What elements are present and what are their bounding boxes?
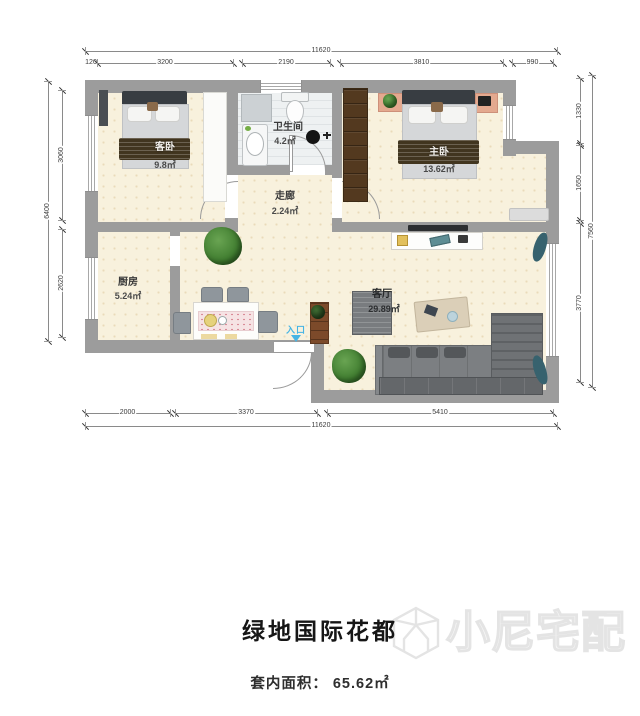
dimension-part — [576, 78, 584, 79]
dimension-label: 6400 — [44, 202, 52, 220]
total-area-value: 65.62㎡ — [333, 676, 390, 692]
dimension-part — [242, 59, 243, 67]
plan-title: 绿地国际花都 — [0, 612, 640, 646]
dimension-label: 3060 — [58, 146, 66, 164]
dimension-part — [44, 341, 52, 342]
dimension-label: 7560 — [588, 222, 596, 240]
dimension-part — [576, 382, 584, 383]
dimension-label: 3770 — [576, 294, 584, 312]
dimension-label: 3370 — [237, 409, 255, 417]
total-area-line: 套内面积： 65.62㎡ — [0, 672, 640, 693]
dimension-part — [512, 59, 513, 67]
dimension-part — [58, 229, 66, 230]
dimension-part — [58, 337, 66, 338]
dimension-part — [553, 409, 554, 417]
dimension-part — [175, 409, 176, 417]
dimension-label: 3810 — [413, 59, 431, 67]
dimension-label: 11620 — [311, 47, 332, 55]
dimension-label: 990 — [526, 59, 540, 67]
dimension-part — [588, 387, 596, 388]
dimension-label: 2000 — [119, 409, 137, 417]
dimension-label: 2190 — [277, 59, 295, 67]
dimension-part — [327, 409, 328, 417]
dimension-label: 5410 — [431, 409, 449, 417]
dimension-layer: 1162012032002190381099064003060262013301… — [0, 0, 640, 716]
floor-plan-page: 客卧 9.8㎡ 卫生间 4.2㎡ 走廊 2.24㎡ 主卧 13.62㎡ 厨房 5… — [0, 0, 640, 716]
dimension-part — [85, 47, 86, 55]
dimension-part — [233, 59, 234, 67]
dimension-label: 1650 — [576, 174, 584, 192]
dimension-label: 3200 — [156, 59, 174, 67]
dimension-part — [557, 47, 558, 55]
dimension-part — [330, 59, 331, 67]
dimension-label: 2620 — [58, 274, 66, 292]
dimension-part — [503, 59, 504, 67]
dimension-part — [576, 223, 584, 224]
dimension-part — [58, 90, 66, 91]
dimension-part — [553, 59, 554, 67]
dimension-part — [97, 59, 98, 67]
dimension-part — [85, 422, 86, 430]
dimension-part — [58, 220, 66, 221]
dimension-part — [557, 422, 558, 430]
total-area-label: 套内面积： — [250, 676, 328, 692]
dimension-part — [85, 409, 86, 417]
dimension-part — [576, 145, 584, 146]
dimension-label: 11620 — [311, 422, 332, 430]
dimension-part — [340, 59, 341, 67]
dimension-label: 1330 — [576, 102, 584, 120]
dimension-part — [170, 409, 171, 417]
dimension-part — [588, 75, 596, 76]
dimension-part — [317, 409, 318, 417]
dimension-part — [44, 81, 52, 82]
